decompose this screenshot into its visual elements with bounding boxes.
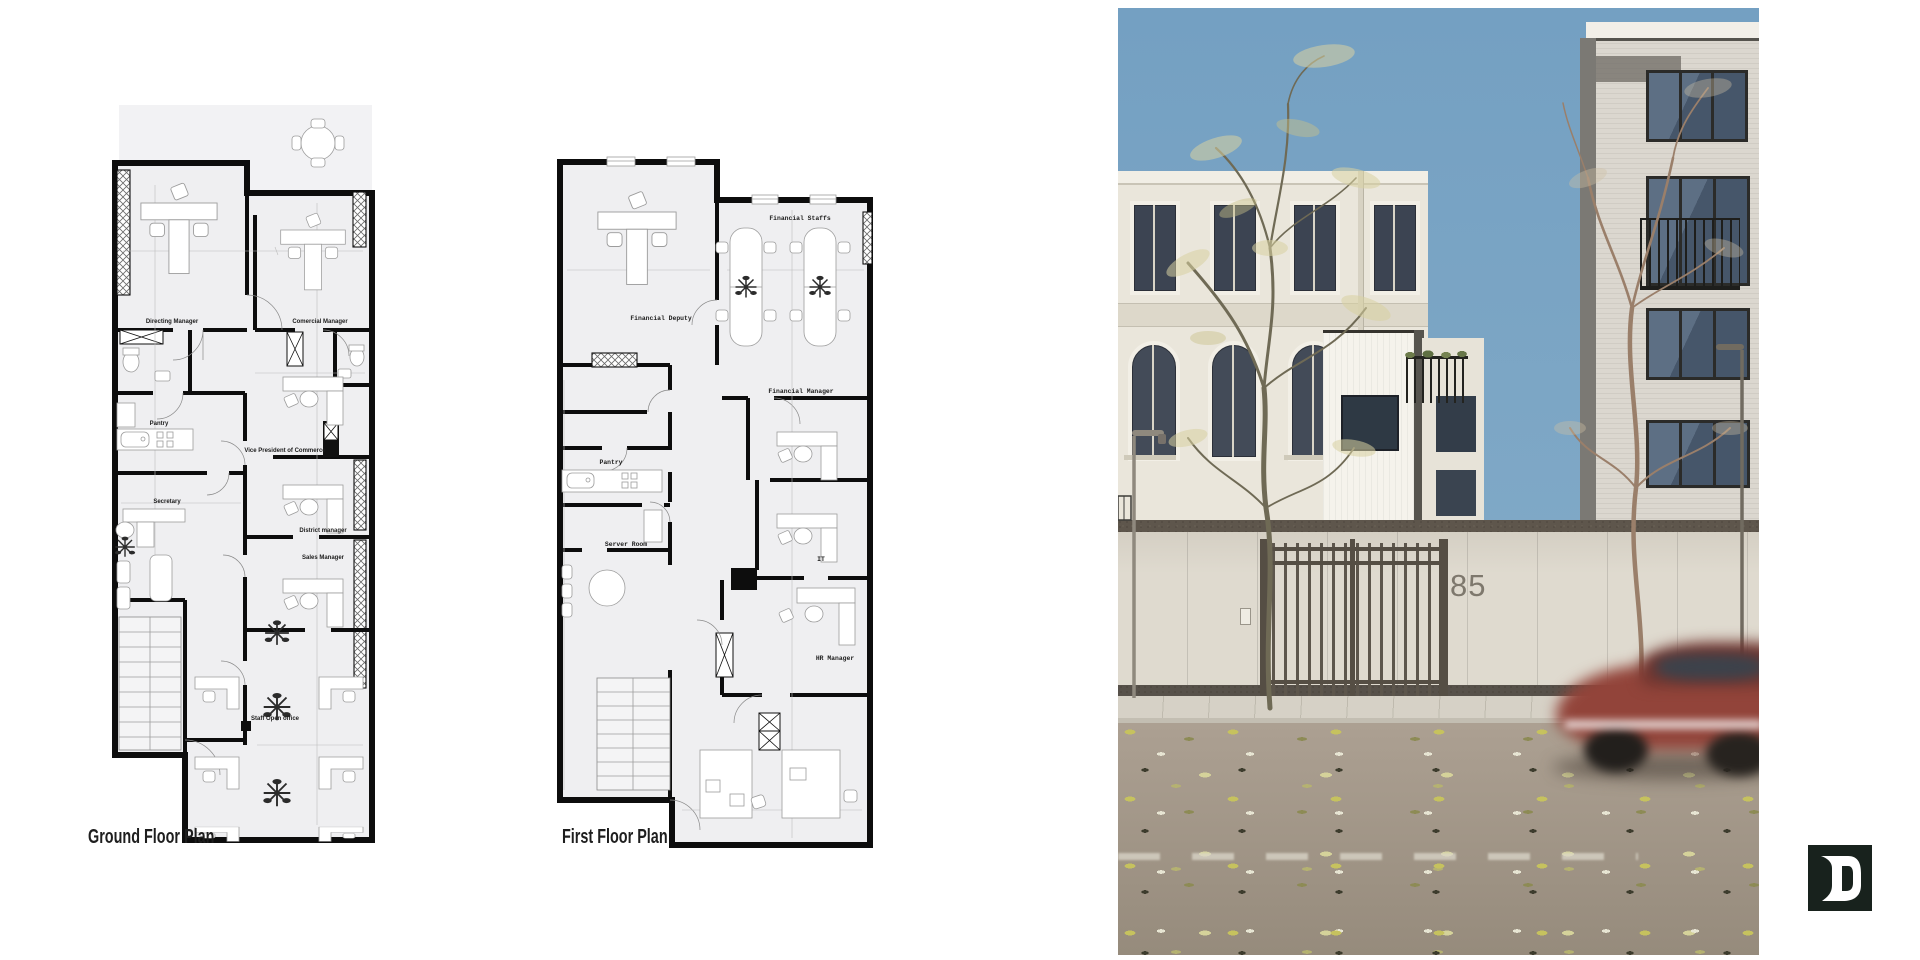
first-floor-caption: First Floor Plan — [562, 826, 668, 849]
room-label: Directing Manager — [146, 319, 199, 325]
modern-building — [1323, 330, 1418, 531]
room-label: District manager — [299, 528, 347, 534]
room-label: Server Room — [605, 541, 647, 548]
doorbell-panel — [1240, 608, 1251, 625]
window — [1370, 201, 1420, 295]
window — [1210, 201, 1260, 295]
window-sill — [1124, 455, 1176, 460]
juliet-balcony — [1640, 218, 1740, 290]
arched-window — [1128, 341, 1180, 461]
lane-marking — [1118, 853, 1638, 860]
ground-floor-plan: Directing Manager Comercial Manager Pant… — [95, 85, 395, 855]
gate-post — [1350, 539, 1355, 699]
window — [1290, 201, 1340, 295]
car-bumper-highlight — [1564, 720, 1759, 729]
column — [241, 721, 251, 731]
arched-window — [1208, 341, 1260, 461]
room-label: Secretary — [153, 499, 181, 505]
red-car — [1546, 636, 1759, 776]
room-label: IT — [817, 556, 825, 563]
window-hatch — [353, 192, 366, 247]
room-label: Financial Manager — [768, 388, 833, 395]
room-label: Financial Staffs — [769, 215, 831, 222]
window-hatch — [354, 460, 366, 530]
entrance-gate — [1260, 543, 1448, 698]
gate-post — [1260, 539, 1269, 699]
room-label: Financial Deputy — [630, 315, 692, 322]
room-label: Vice President of Commerce — [244, 448, 326, 454]
window-hatch — [117, 170, 130, 295]
window-hatch — [592, 353, 637, 367]
stairs — [119, 617, 181, 750]
window-hatch — [863, 212, 872, 264]
window — [1436, 470, 1476, 516]
pantry-counter — [562, 470, 662, 492]
window — [1341, 395, 1399, 451]
roof-slab — [1586, 22, 1759, 41]
room-label: Pantry — [599, 459, 622, 466]
string-course — [1118, 303, 1428, 327]
window — [1646, 308, 1750, 380]
cornice — [1118, 171, 1428, 185]
window — [1646, 70, 1748, 142]
wall-coping — [1118, 520, 1759, 532]
gate-post — [1439, 539, 1448, 699]
room-label: Comercial Manager — [292, 319, 348, 325]
window — [1646, 420, 1750, 488]
stairs — [597, 678, 670, 790]
window — [1436, 396, 1476, 452]
presentation-sheet: Directing Manager Comercial Manager Pant… — [0, 0, 1920, 960]
room-label: Sales Manager — [302, 555, 345, 561]
window-hatch — [354, 540, 366, 688]
brick-building — [1596, 28, 1759, 520]
ground-floor-caption: Ground Floor Plan — [88, 826, 214, 849]
building-side-wall — [1580, 38, 1596, 520]
server-rack — [644, 510, 662, 542]
room-label: Pantry — [150, 421, 169, 427]
room-label: Staff Open office — [251, 716, 300, 722]
window — [1130, 201, 1180, 295]
first-floor-plan: Financial Staffs Financial Deputy Financ… — [552, 150, 882, 860]
logo-letter-d: D — [1808, 845, 1872, 911]
wall-block — [731, 568, 757, 590]
room-label: HR Manager — [816, 655, 855, 662]
car-windshield — [1656, 654, 1759, 680]
brand-logo: D — [1808, 845, 1872, 911]
roof-terrace-railing — [1406, 356, 1468, 403]
house-number: 85 — [1450, 568, 1486, 604]
car-wheel-icon — [1584, 728, 1648, 772]
building-photo: 85 — [1118, 8, 1759, 955]
terrace-plants — [1402, 347, 1472, 359]
